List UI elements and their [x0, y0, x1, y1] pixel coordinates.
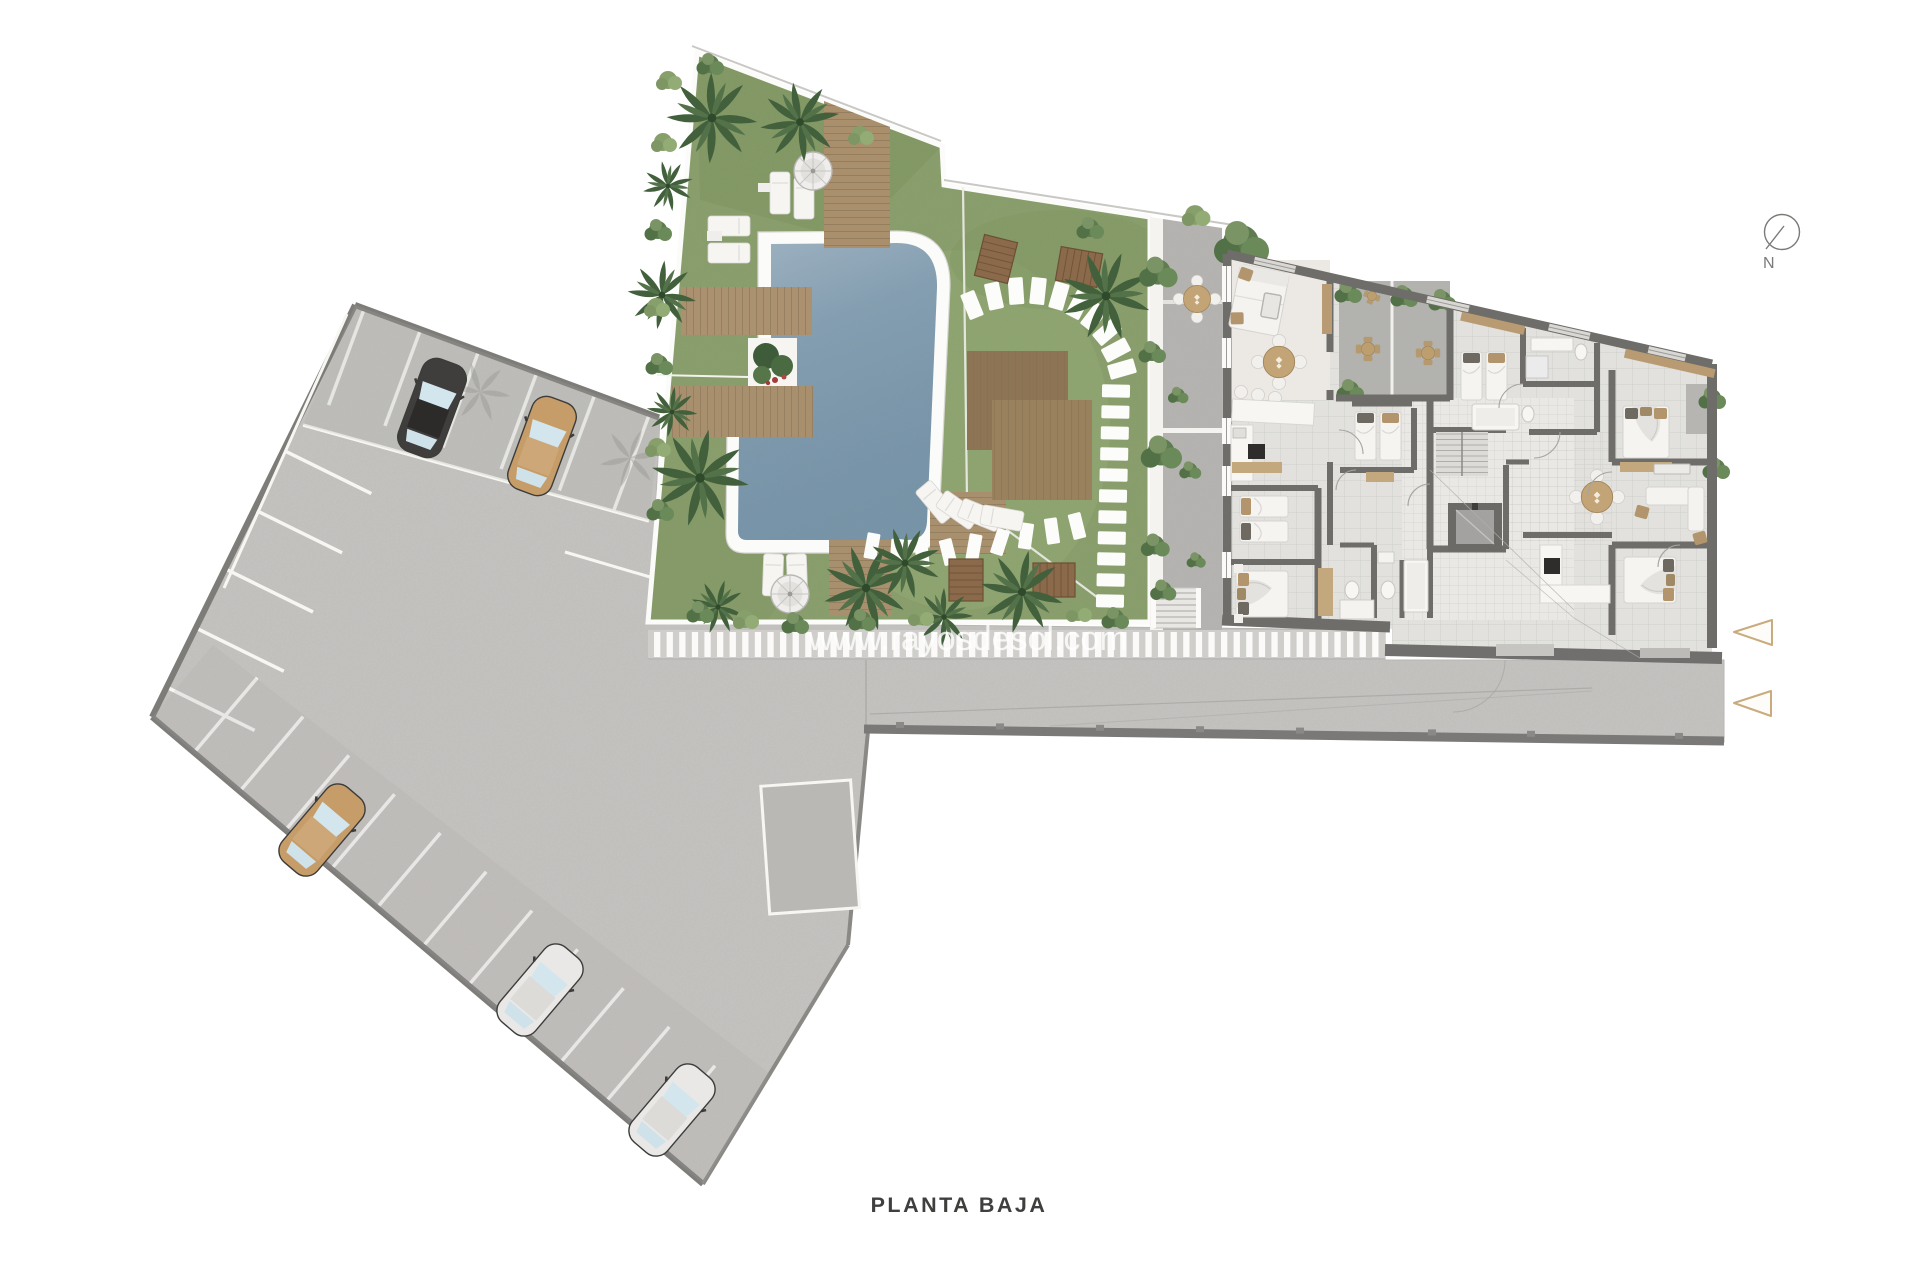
svg-text:PLANTA BAJA: PLANTA BAJA	[871, 1193, 1048, 1217]
svg-text:N: N	[1763, 255, 1775, 272]
svg-text:www.rayosdesol.com: www.rayosdesol.com	[807, 620, 1127, 658]
